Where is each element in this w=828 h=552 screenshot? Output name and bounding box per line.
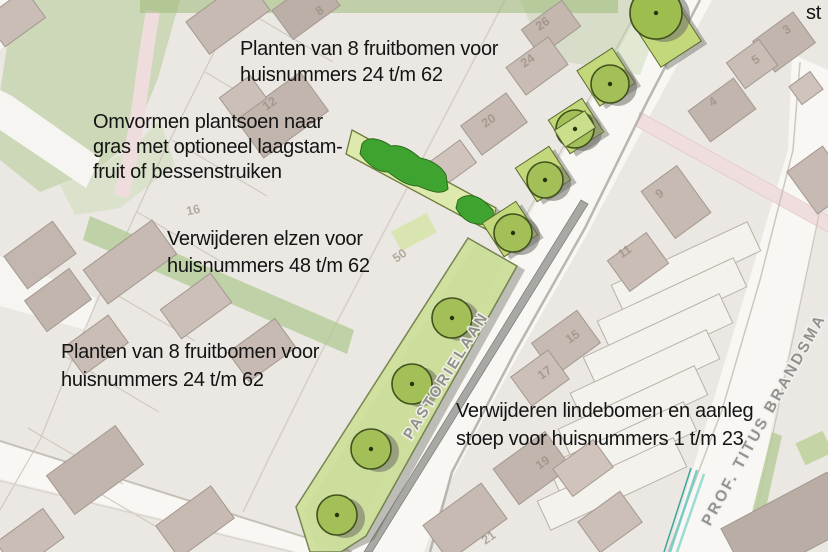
annotation-line: st [806, 0, 821, 26]
annotation-line: Planten van 8 fruitbomen voor [240, 36, 498, 62]
annotation-plant-fruit-north: Planten van 8 fruitbomen voor huisnummer… [240, 36, 498, 88]
annotation-line: fruit of bessenstruiken [93, 160, 343, 185]
annotation-line: huisnummers 24 t/m 62 [240, 62, 498, 88]
annotation-line: Omvormen plantsoen naar [93, 110, 343, 135]
plan-map: 826241220163549111517192150 PASTORIELAAN… [0, 0, 828, 552]
svg-text:16: 16 [185, 202, 202, 219]
annotation-line: stoep voor huisnummers 1 t/m 23 [456, 425, 753, 453]
annotation-line: Verwijderen lindebomen en aanleg [456, 397, 753, 425]
annotation-verwijderen-lindebomen: Verwijderen lindebomen en aanleg stoep v… [456, 397, 753, 453]
annotation-omvormen-plantsoen: Omvormen plantsoen naar gras met optione… [93, 110, 343, 185]
annotation-line: Verwijderen elzen voor [167, 226, 370, 253]
annotation-verwijderen-elzen: Verwijderen elzen voor huisnummers 48 t/… [167, 226, 370, 280]
annotation-edge-cutoff: st [806, 0, 821, 26]
annotation-line: huisnummers 24 t/m 62 [61, 366, 319, 394]
annotation-line: Planten van 8 fruitbomen voor [61, 338, 319, 366]
annotation-line: gras met optioneel laagstam- [93, 135, 343, 160]
annotation-plant-fruit-south: Planten van 8 fruitbomen voor huisnummer… [61, 338, 319, 394]
annotation-line: huisnummers 48 t/m 62 [167, 253, 370, 280]
